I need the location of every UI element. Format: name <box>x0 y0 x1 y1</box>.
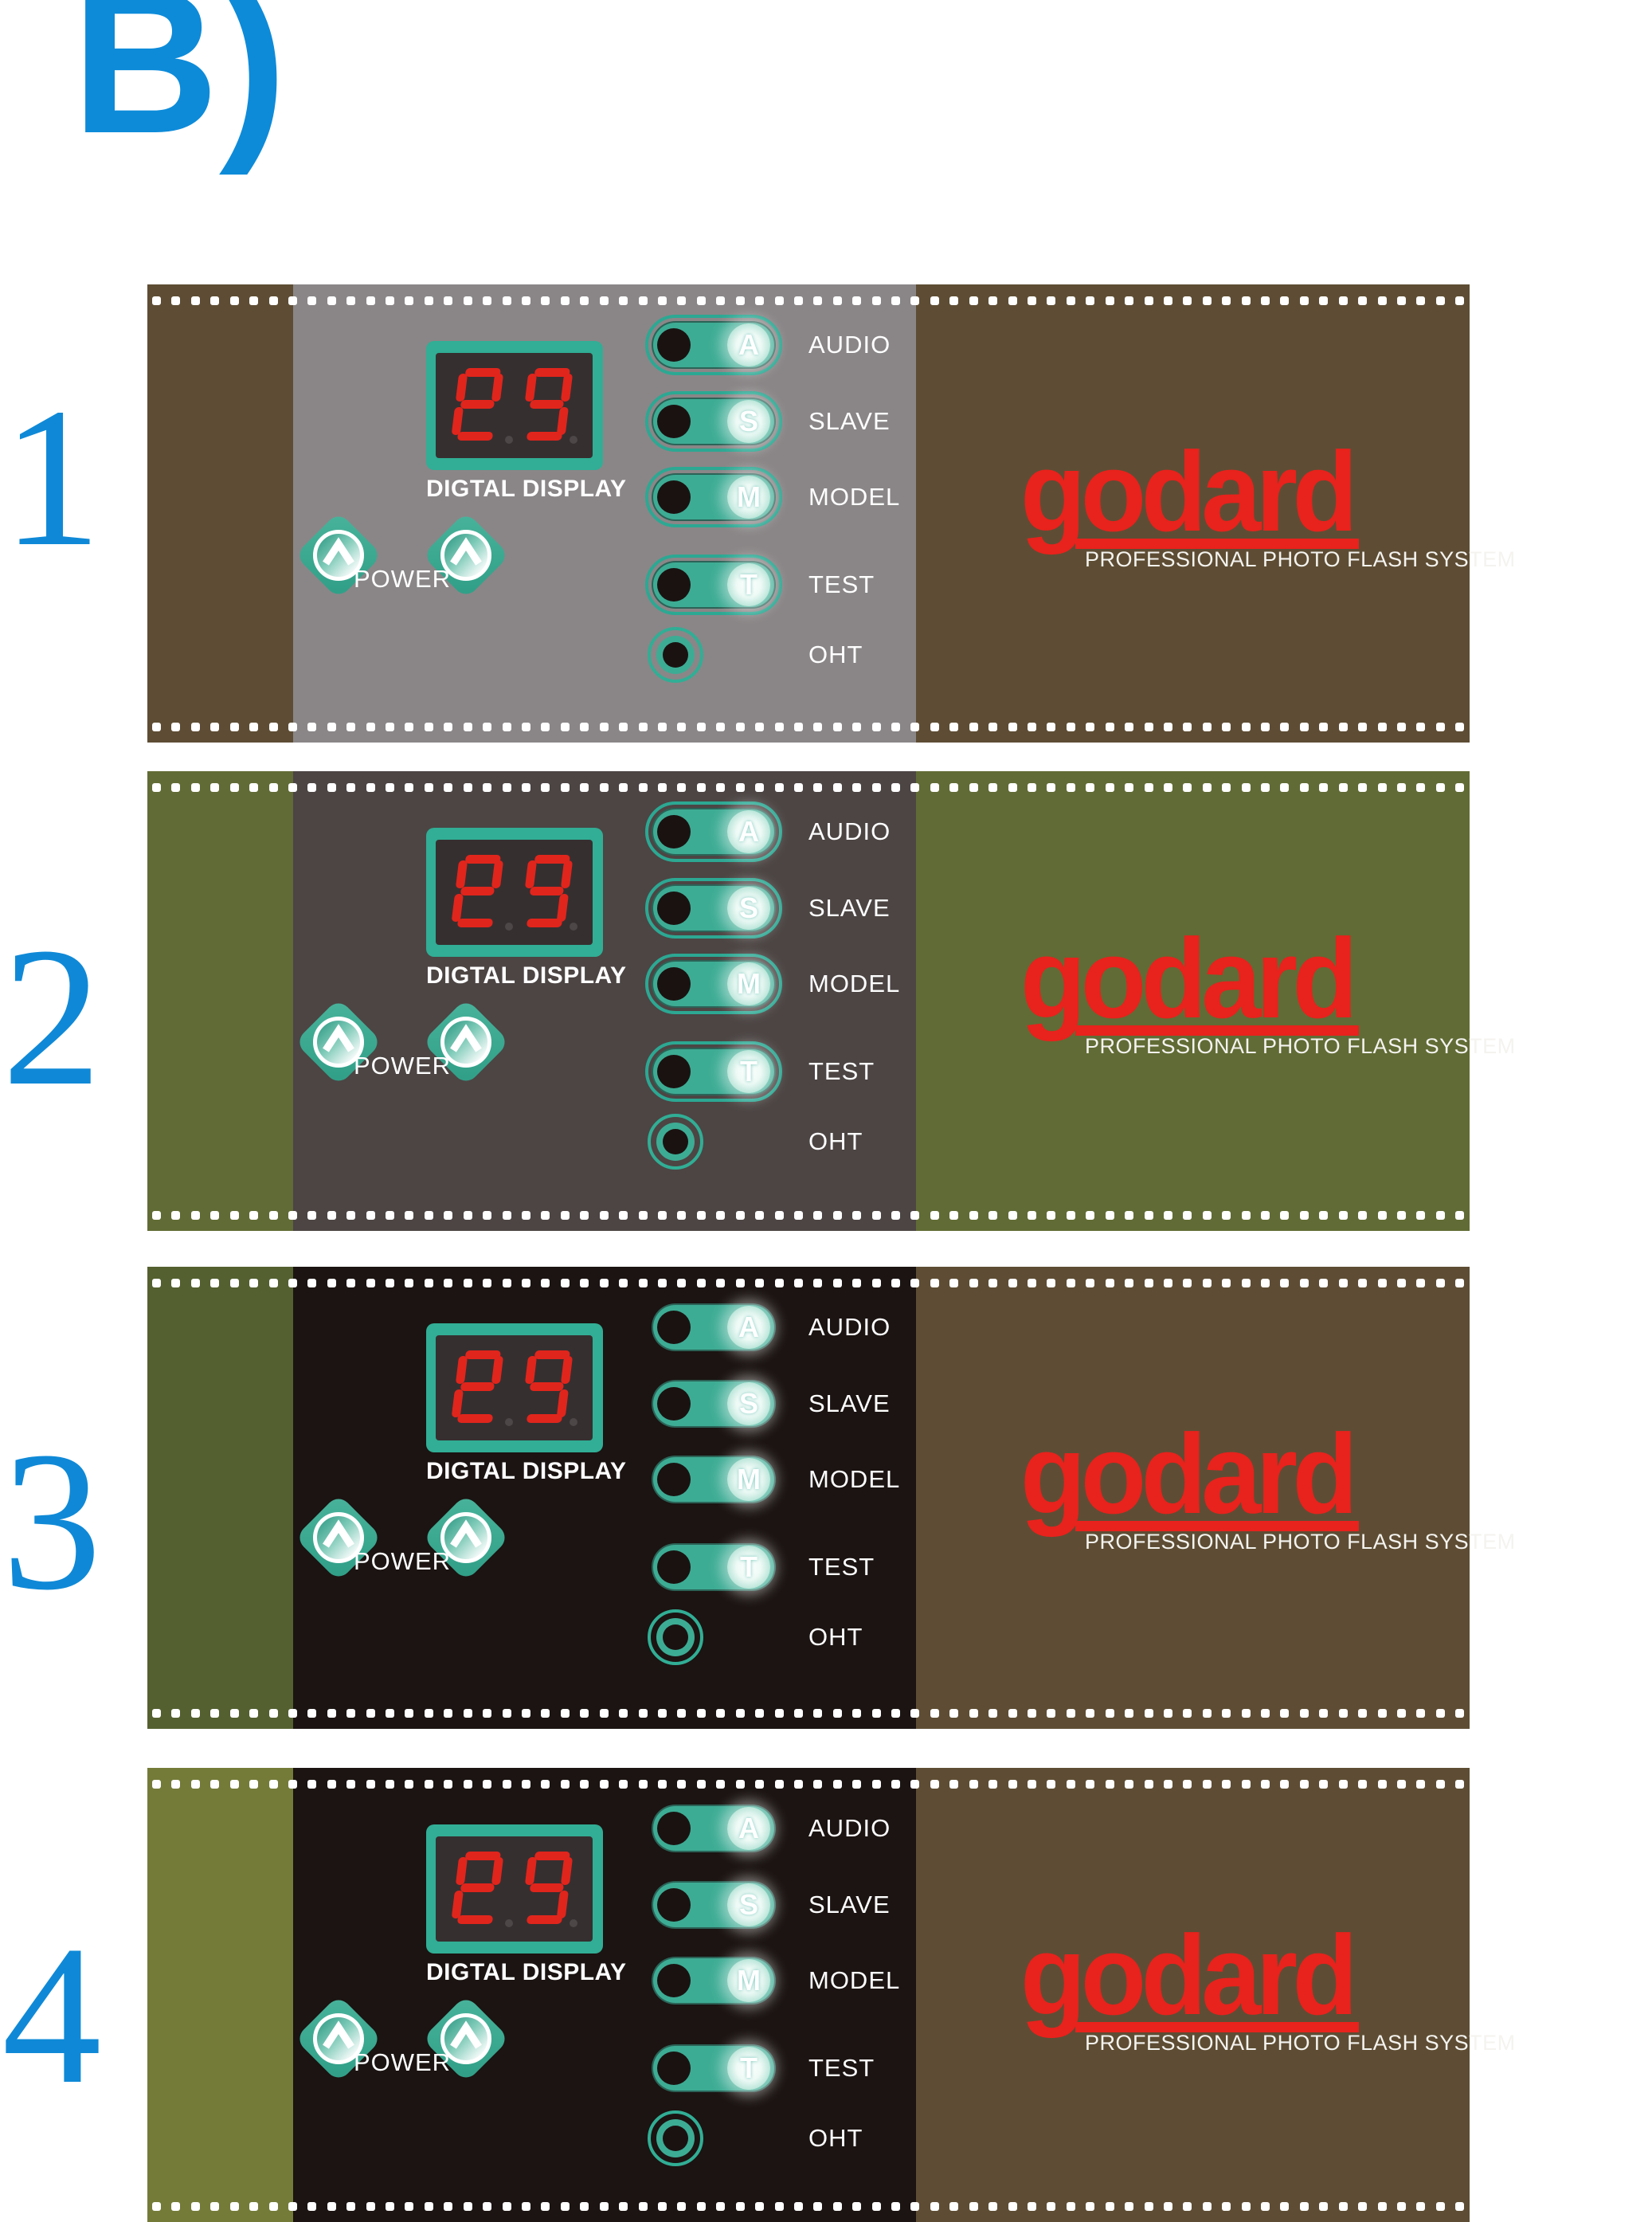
perforation-dot <box>230 1709 239 1718</box>
perforation-dot <box>1378 1279 1387 1287</box>
perforation-dot <box>171 1780 180 1789</box>
perforation-dot <box>346 723 355 731</box>
perforation-dot <box>269 723 278 731</box>
perforation-dot <box>152 2202 161 2211</box>
toggle-model-switch[interactable]: M <box>645 467 782 527</box>
perforation-dot <box>171 2202 180 2211</box>
perforation-dot <box>327 296 336 305</box>
perforation-dot <box>1028 1709 1036 1718</box>
perforation-dot <box>910 1279 919 1287</box>
perforation-dot <box>1397 296 1406 305</box>
switch-letter: A <box>727 1306 770 1349</box>
perforation-dot <box>1242 723 1251 731</box>
perforation-dot <box>833 1709 842 1718</box>
perforation-dot <box>1145 723 1153 731</box>
perforation-dot <box>949 723 958 731</box>
perforation-dot <box>716 723 725 731</box>
perforation-dot <box>930 1780 939 1789</box>
toggle-test-switch[interactable]: T <box>645 555 782 615</box>
perforation-dot <box>1008 1279 1017 1287</box>
switch-letter: A <box>727 810 770 853</box>
perforation-dot <box>307 2202 316 2211</box>
perforation-dot <box>1106 1279 1114 1287</box>
perforation-dot <box>425 1211 433 1220</box>
perforation-dot <box>755 723 764 731</box>
filmstrip-perforations-bottom <box>152 1709 1465 1718</box>
perforation-dot <box>1397 723 1406 731</box>
perforation-dot <box>210 723 219 731</box>
perforation-dot <box>405 723 413 731</box>
perforation-dot <box>269 783 278 792</box>
toggle-slave-switch[interactable]: S <box>645 391 782 452</box>
perforation-dot <box>483 1279 491 1287</box>
toggle-test-switch[interactable]: T <box>645 1537 782 1597</box>
oht-center <box>663 1624 688 1650</box>
perforation-dot <box>1203 2202 1212 2211</box>
perforation-dot <box>1106 2202 1114 2211</box>
perforation-dot <box>1086 723 1094 731</box>
perforation-dot <box>483 723 491 731</box>
perforation-dot <box>1339 1709 1348 1718</box>
toggle-row-slave: SSLAVE <box>645 878 891 939</box>
perforation-dot <box>405 1211 413 1220</box>
perforation-dot <box>464 2202 472 2211</box>
perforation-dot <box>833 1780 842 1789</box>
variant-number: 1 <box>0 378 115 578</box>
perforation-dot <box>1455 723 1464 731</box>
perforation-dot <box>716 1709 725 1718</box>
perforation-dot <box>1319 1279 1328 1287</box>
perforation-dot <box>503 1211 511 1220</box>
switch-letter: T <box>727 1546 770 1589</box>
switch-knob <box>657 1888 691 1922</box>
perforation-dot <box>1008 296 1017 305</box>
perforation-dot <box>503 723 511 731</box>
perforation-dot <box>1300 1279 1309 1287</box>
perforation-dot <box>1300 1211 1309 1220</box>
perforation-dot <box>1280 1780 1289 1789</box>
perforation-dot <box>307 783 316 792</box>
perforation-dot <box>813 1709 822 1718</box>
perforation-dot <box>249 296 258 305</box>
toggle-audio-switch[interactable]: A <box>645 801 782 862</box>
perforation-dot <box>249 1709 258 1718</box>
switch-label: MODEL <box>808 1465 900 1494</box>
toggle-row-model: MMODEL <box>645 1950 900 2011</box>
digital-display <box>426 341 603 470</box>
perforation-dot <box>210 2202 219 2211</box>
toggle-audio-switch[interactable]: A <box>645 1297 782 1358</box>
perforation-dot <box>1416 783 1425 792</box>
perforation-dot <box>1378 783 1387 792</box>
perforation-dot <box>230 2202 239 2211</box>
perforation-dot <box>210 1211 219 1220</box>
perforation-dot <box>1222 723 1231 731</box>
perforation-dot <box>425 783 433 792</box>
perforation-dot <box>522 783 530 792</box>
switch-letter: M <box>727 1959 770 2002</box>
perforation-dot <box>327 2202 336 2211</box>
perforation-dot <box>288 1780 297 1789</box>
perforation-dot <box>1067 1211 1075 1220</box>
perforation-dot <box>736 1279 745 1287</box>
toggle-model-switch[interactable]: M <box>645 954 782 1014</box>
perforation-dot <box>1067 296 1075 305</box>
perforation-dot <box>210 1279 219 1287</box>
perforation-dot <box>191 783 200 792</box>
perforation-dot <box>1358 296 1367 305</box>
perforation-dot <box>405 783 413 792</box>
perforation-dot <box>891 1279 900 1287</box>
perforation-dot <box>1203 1709 1212 1718</box>
switch-label: AUDIO <box>808 1814 891 1843</box>
brand-wordmark: godard <box>1020 923 1353 1036</box>
perforation-dot <box>677 1211 686 1220</box>
filmstrip-perforations-top <box>152 1279 1465 1287</box>
perforation-dot <box>600 723 609 731</box>
perforation-dot <box>405 2202 413 2211</box>
perforation-dot <box>658 783 667 792</box>
toggle-slave-switch[interactable]: S <box>645 1374 782 1434</box>
perforation-dot <box>872 2202 881 2211</box>
perforation-dot <box>522 1780 530 1789</box>
perforation-dot <box>444 296 452 305</box>
perforation-dot <box>1280 296 1289 305</box>
perforation-dot <box>852 1211 861 1220</box>
filmstrip-perforations-bottom <box>152 2202 1465 2211</box>
perforation-dot <box>580 1279 589 1287</box>
perforation-dot <box>852 2202 861 2211</box>
perforation-dot <box>1183 296 1192 305</box>
brand-tagline: PROFESSIONAL PHOTO FLASH SYSTEM <box>1085 1034 1516 1059</box>
switch-pill: M <box>652 960 776 1008</box>
toggle-audio-switch[interactable]: A <box>645 315 782 375</box>
perforation-dot <box>503 296 511 305</box>
oht-lens <box>656 636 695 674</box>
perforation-dot <box>444 2202 452 2211</box>
perforation-dot <box>1300 296 1309 305</box>
perforation-dot <box>1086 783 1094 792</box>
switch-label: MODEL <box>808 1966 900 1995</box>
perforation-dot <box>794 783 803 792</box>
perforation-dot <box>1300 783 1309 792</box>
perforation-dot <box>619 723 628 731</box>
toggle-model-switch[interactable]: M <box>645 1449 782 1510</box>
perforation-dot <box>171 783 180 792</box>
perforation-dot <box>327 783 336 792</box>
toggle-row-audio: AAUDIO <box>645 1297 891 1358</box>
switch-label: TEST <box>808 1553 875 1581</box>
perforation-dot <box>444 783 452 792</box>
perforation-dot <box>1047 296 1055 305</box>
switch-knob <box>657 1055 691 1088</box>
perforation-dot <box>639 296 648 305</box>
perforation-dot <box>930 1709 939 1718</box>
perforation-dot <box>891 1780 900 1789</box>
toggle-audio-switch[interactable]: A <box>645 1798 782 1859</box>
perforation-dot <box>444 1279 452 1287</box>
switch-knob <box>657 2052 691 2085</box>
perforation-dot <box>949 1709 958 1718</box>
perforation-dot <box>736 1709 745 1718</box>
switch-knob <box>657 480 691 514</box>
perforation-dot <box>1067 1279 1075 1287</box>
switch-letter: M <box>727 476 770 519</box>
perforation-dot <box>1280 1211 1289 1220</box>
toggle-test-switch[interactable]: T <box>645 2038 782 2099</box>
perforation-dot <box>210 296 219 305</box>
flash-panel: 3 DIGTAL DISPLAY POWER AAUDIOSSLAVEMMODE… <box>147 1267 1470 1729</box>
perforation-dot <box>307 296 316 305</box>
perforation-dot <box>1339 1780 1348 1789</box>
perforation-dot <box>639 2202 648 2211</box>
perforation-dot <box>152 1279 161 1287</box>
perforation-dot <box>969 783 978 792</box>
toggle-slave-switch[interactable]: S <box>645 1875 782 1935</box>
display-label: DIGTAL DISPLAY <box>426 962 603 990</box>
perforation-dot <box>425 2202 433 2211</box>
perforation-dot <box>1397 2202 1406 2211</box>
perforation-dot <box>1183 1709 1192 1718</box>
switch-letter: S <box>727 1382 770 1425</box>
perforation-dot <box>1436 723 1445 731</box>
perforation-dot <box>386 783 394 792</box>
perforation-dot <box>269 1279 278 1287</box>
oht-center <box>663 2126 688 2151</box>
perforation-dot <box>230 723 239 731</box>
perforation-dot <box>930 783 939 792</box>
perforation-dot <box>1028 783 1036 792</box>
perforation-dot <box>1436 1279 1445 1287</box>
perforation-dot <box>1028 1780 1036 1789</box>
perforation-dot <box>171 296 180 305</box>
perforation-dot <box>1067 1780 1075 1789</box>
perforation-dot <box>1242 2202 1251 2211</box>
perforation-dot <box>1300 1709 1309 1718</box>
switch-pill: S <box>652 1380 776 1428</box>
perforation-dot <box>1183 1780 1192 1789</box>
perforation-dot <box>1358 2202 1367 2211</box>
toggle-row-model: MMODEL <box>645 1449 900 1510</box>
perforation-dot <box>1047 1211 1055 1220</box>
perforation-dot <box>1086 1709 1094 1718</box>
perforation-dot <box>386 1780 394 1789</box>
perforation-dot <box>658 723 667 731</box>
perforation-dot <box>327 1279 336 1287</box>
perforation-dot <box>600 1780 609 1789</box>
perforation-dot <box>949 1279 958 1287</box>
perforation-dot <box>1203 1211 1212 1220</box>
perforation-dot <box>405 296 413 305</box>
perforation-dot <box>755 1709 764 1718</box>
perforation-dot <box>910 723 919 731</box>
perforation-dot <box>152 1780 161 1789</box>
oht-indicator-light <box>648 2110 703 2166</box>
perforation-dot <box>677 1780 686 1789</box>
perforation-dot <box>949 296 958 305</box>
toggle-slave-switch[interactable]: S <box>645 878 782 939</box>
perforation-dot <box>366 1780 375 1789</box>
perforation-dot <box>755 783 764 792</box>
perforation-dot <box>775 296 784 305</box>
perforation-dot <box>288 1211 297 1220</box>
toggle-row-audio: AAUDIO <box>645 315 891 375</box>
perforation-dot <box>716 1211 725 1220</box>
perforation-dot <box>872 723 881 731</box>
switch-knob <box>657 328 691 362</box>
perforation-dot <box>1183 723 1192 731</box>
perforation-dot <box>1455 1211 1464 1220</box>
perforation-dot <box>1416 2202 1425 2211</box>
perforation-dot <box>891 1211 900 1220</box>
perforation-dot <box>600 1211 609 1220</box>
perforation-dot <box>249 783 258 792</box>
perforation-dot <box>288 296 297 305</box>
perforation-dot <box>1106 723 1114 731</box>
switch-letter: A <box>727 323 770 366</box>
brand-tagline: PROFESSIONAL PHOTO FLASH SYSTEM <box>1085 547 1516 572</box>
perforation-dot <box>1164 1279 1172 1287</box>
perforation-dot <box>619 783 628 792</box>
toggle-row-test: TTEST <box>645 1537 875 1597</box>
perforation-dot <box>541 723 550 731</box>
perforation-dot <box>561 2202 570 2211</box>
perforation-dot <box>346 1780 355 1789</box>
perforation-dot <box>346 783 355 792</box>
perforation-dot <box>405 1279 413 1287</box>
perforation-dot <box>697 1709 706 1718</box>
perforation-dot <box>1242 1780 1251 1789</box>
perforation-dot <box>639 1279 648 1287</box>
perforation-dot <box>755 1279 764 1287</box>
perforation-dot <box>152 1211 161 1220</box>
perforation-dot <box>910 1211 919 1220</box>
switch-letter: A <box>727 1807 770 1850</box>
perforation-dot <box>1319 1211 1328 1220</box>
toggle-row-audio: AAUDIO <box>645 1798 891 1859</box>
display-label: DIGTAL DISPLAY <box>426 476 603 503</box>
switch-pill: T <box>652 561 776 609</box>
perforation-dot <box>1222 1211 1231 1220</box>
perforation-dot <box>1145 1279 1153 1287</box>
perforation-dot <box>230 1780 239 1789</box>
perforation-dot <box>872 783 881 792</box>
perforation-dot <box>1378 2202 1387 2211</box>
perforation-dot <box>697 1211 706 1220</box>
perforation-dot <box>1378 1211 1387 1220</box>
perforation-dot <box>1067 723 1075 731</box>
perforation-dot <box>425 723 433 731</box>
perforation-dot <box>813 1780 822 1789</box>
perforation-dot <box>813 2202 822 2211</box>
perforation-dot <box>833 723 842 731</box>
perforation-dot <box>1300 1780 1309 1789</box>
perforation-dot <box>444 1780 452 1789</box>
oht-indicator-light <box>648 627 703 683</box>
perforation-dot <box>736 2202 745 2211</box>
perforation-dot <box>1164 1211 1172 1220</box>
seven-segment-screen <box>436 1836 593 1942</box>
perforation-dot <box>1028 1211 1036 1220</box>
perforation-dot <box>366 1709 375 1718</box>
perforation-dot <box>249 1279 258 1287</box>
perforation-dot <box>930 1211 939 1220</box>
perforation-dot <box>386 1211 394 1220</box>
perforation-dot <box>1008 723 1017 731</box>
switch-letter: T <box>727 563 770 606</box>
toggle-row-test: TTEST <box>645 2038 875 2099</box>
perforation-dot <box>716 296 725 305</box>
perforation-dot <box>1397 1279 1406 1287</box>
switch-pill: T <box>652 2044 776 2092</box>
switch-knob <box>657 405 691 438</box>
switch-label: MODEL <box>808 483 900 511</box>
filmstrip-perforations-bottom <box>152 1211 1465 1220</box>
perforation-dot <box>1008 783 1017 792</box>
perforation-dot <box>969 296 978 305</box>
perforation-dot <box>677 1709 686 1718</box>
brand-tagline: PROFESSIONAL PHOTO FLASH SYSTEM <box>1085 1530 1516 1554</box>
perforation-dot <box>386 1279 394 1287</box>
perforation-dot <box>716 1780 725 1789</box>
perforation-dot <box>1416 723 1425 731</box>
perforation-dot <box>580 723 589 731</box>
perforation-dot <box>386 1709 394 1718</box>
oht-label: OHT <box>808 639 863 671</box>
perforation-dot <box>1183 1279 1192 1287</box>
perforation-dot <box>1047 783 1055 792</box>
perforation-dot <box>775 2202 784 2211</box>
perforation-dot <box>522 1279 530 1287</box>
perforation-dot <box>852 1279 861 1287</box>
perforation-dot <box>833 296 842 305</box>
perforation-dot <box>1378 1780 1387 1789</box>
perforation-dot <box>1203 296 1212 305</box>
oht-indicator-light <box>648 1114 703 1170</box>
perforation-dot <box>1008 1211 1017 1220</box>
digital-display <box>426 1824 603 1954</box>
perforation-dot <box>249 723 258 731</box>
perforation-dot <box>1397 783 1406 792</box>
perforation-dot <box>1378 296 1387 305</box>
perforation-dot <box>1397 1211 1406 1220</box>
perforation-dot <box>522 2202 530 2211</box>
perforation-dot <box>988 1780 997 1789</box>
perforation-dot <box>1086 1279 1094 1287</box>
toggle-test-switch[interactable]: T <box>645 1041 782 1102</box>
perforation-dot <box>1047 1780 1055 1789</box>
perforation-dot <box>580 1780 589 1789</box>
perforation-dot <box>464 1709 472 1718</box>
perforation-dot <box>1455 1709 1464 1718</box>
perforation-dot <box>677 783 686 792</box>
perforation-dot <box>619 1780 628 1789</box>
perforation-dot <box>813 1279 822 1287</box>
perforation-dot <box>658 1780 667 1789</box>
perforation-dot <box>541 783 550 792</box>
perforation-dot <box>191 1211 200 1220</box>
perforation-dot <box>1242 1279 1251 1287</box>
toggle-model-switch[interactable]: M <box>645 1950 782 2011</box>
panel-left-stripe <box>147 284 293 743</box>
perforation-dot <box>619 1709 628 1718</box>
perforation-dot <box>1222 2202 1231 2211</box>
perforation-dot <box>307 723 316 731</box>
power-label: POWER <box>339 2048 466 2077</box>
perforation-dot <box>346 2202 355 2211</box>
perforation-dot <box>697 723 706 731</box>
perforation-dot <box>464 1279 472 1287</box>
